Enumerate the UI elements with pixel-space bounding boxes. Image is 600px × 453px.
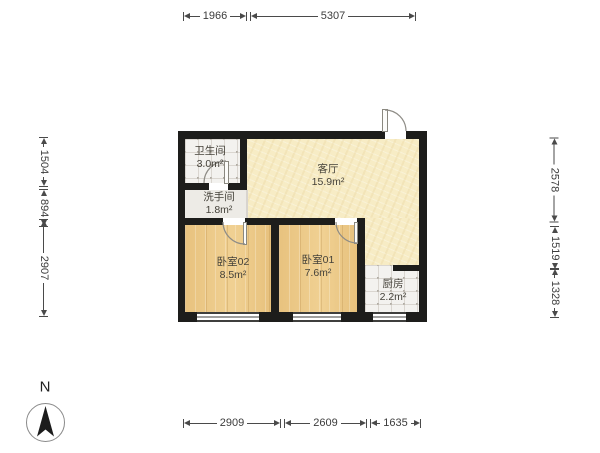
wall-kitchen-top	[393, 265, 419, 271]
washroom-living-divider	[246, 190, 248, 218]
wall-bathroom-bottom-left	[185, 183, 209, 190]
dimension-value: 1328	[549, 278, 561, 308]
wall-bottom-segment	[341, 312, 373, 322]
compass-needle-icon	[27, 404, 64, 441]
room-label-living-room: 客厅 15.9m²	[312, 163, 345, 189]
bedroom02-door-leaf	[243, 222, 247, 245]
dimension-bottom-2: 2609	[284, 417, 367, 429]
dimension-value: 2578	[549, 165, 561, 195]
room-name: 洗手间	[203, 191, 235, 204]
room-name: 卧室01	[302, 254, 335, 267]
wall-right	[419, 131, 427, 322]
wall-bathroom-bottom-right	[228, 183, 247, 190]
room-label-bedroom02: 卧室02 8.5m²	[217, 256, 250, 282]
floor-living-room-extension	[365, 218, 419, 265]
room-label-bedroom01: 卧室01 7.6m²	[302, 254, 335, 280]
dimension-value: 1966	[200, 10, 230, 22]
entry-door-leaf	[382, 109, 388, 132]
dimension-left-2: 894	[38, 189, 50, 217]
wall-bottom-segment	[406, 312, 427, 322]
dimension-bottom-3: 1635	[370, 417, 421, 429]
dimension-value: 1635	[380, 417, 410, 429]
floor-plan: 卫生间 3.0m² 洗手间 1.8m² 客厅 15.9m² 卧室02 8.5m²…	[0, 0, 600, 453]
wall-bottom-segment	[178, 312, 197, 322]
room-area: 2.2m²	[380, 291, 407, 304]
dimension-value: 1519	[549, 233, 561, 263]
room-label-washroom: 洗手间 1.8m²	[203, 191, 235, 217]
bedroom01-door-leaf	[354, 222, 358, 244]
dimension-top-2: 5307	[250, 10, 416, 22]
room-name: 卫生间	[194, 145, 226, 158]
dimension-right-3: 1328	[549, 268, 561, 318]
dimension-value: 1504	[38, 147, 50, 177]
room-label-bathroom: 卫生间 3.0m²	[194, 145, 226, 171]
room-name: 卧室02	[217, 256, 250, 269]
wall-bedrooms-top-segment	[185, 218, 223, 225]
dimension-value: 2909	[217, 417, 247, 429]
room-area: 1.8m²	[203, 204, 235, 217]
window-bedroom01	[293, 312, 341, 322]
window-kitchen	[373, 312, 406, 322]
room-name: 厨房	[380, 278, 407, 291]
wall-top-left-of-entry	[178, 131, 385, 139]
compass-north-label: N	[40, 379, 51, 396]
dimension-right-2: 1519	[549, 226, 561, 266]
room-area: 3.0m²	[194, 158, 226, 171]
window-bedroom02	[197, 312, 259, 322]
dimension-value: 2907	[38, 253, 50, 283]
room-area: 15.9m²	[312, 176, 345, 189]
wall-between-bedrooms	[271, 225, 279, 312]
dimension-value: 5307	[318, 10, 348, 22]
dimension-value: 2609	[310, 417, 340, 429]
dimension-left-1: 1504	[38, 137, 50, 187]
dimension-bottom-1: 2909	[183, 417, 281, 429]
room-area: 7.6m²	[302, 267, 335, 280]
wall-left	[178, 131, 185, 322]
room-name: 客厅	[312, 163, 345, 176]
wall-bedroom01-right	[357, 218, 365, 312]
dimension-value: 894	[38, 196, 50, 220]
room-area: 8.5m²	[217, 269, 250, 282]
dimension-right-1: 2578	[549, 138, 561, 223]
entry-door-arc	[385, 110, 406, 131]
dimension-left-3: 2907	[38, 219, 50, 317]
dimension-top-1: 1966	[183, 10, 247, 22]
wall-bedrooms-top-segment	[245, 218, 335, 225]
wall-bottom-segment	[259, 312, 293, 322]
compass-circle	[26, 403, 65, 442]
room-label-kitchen: 厨房 2.2m²	[380, 278, 407, 304]
